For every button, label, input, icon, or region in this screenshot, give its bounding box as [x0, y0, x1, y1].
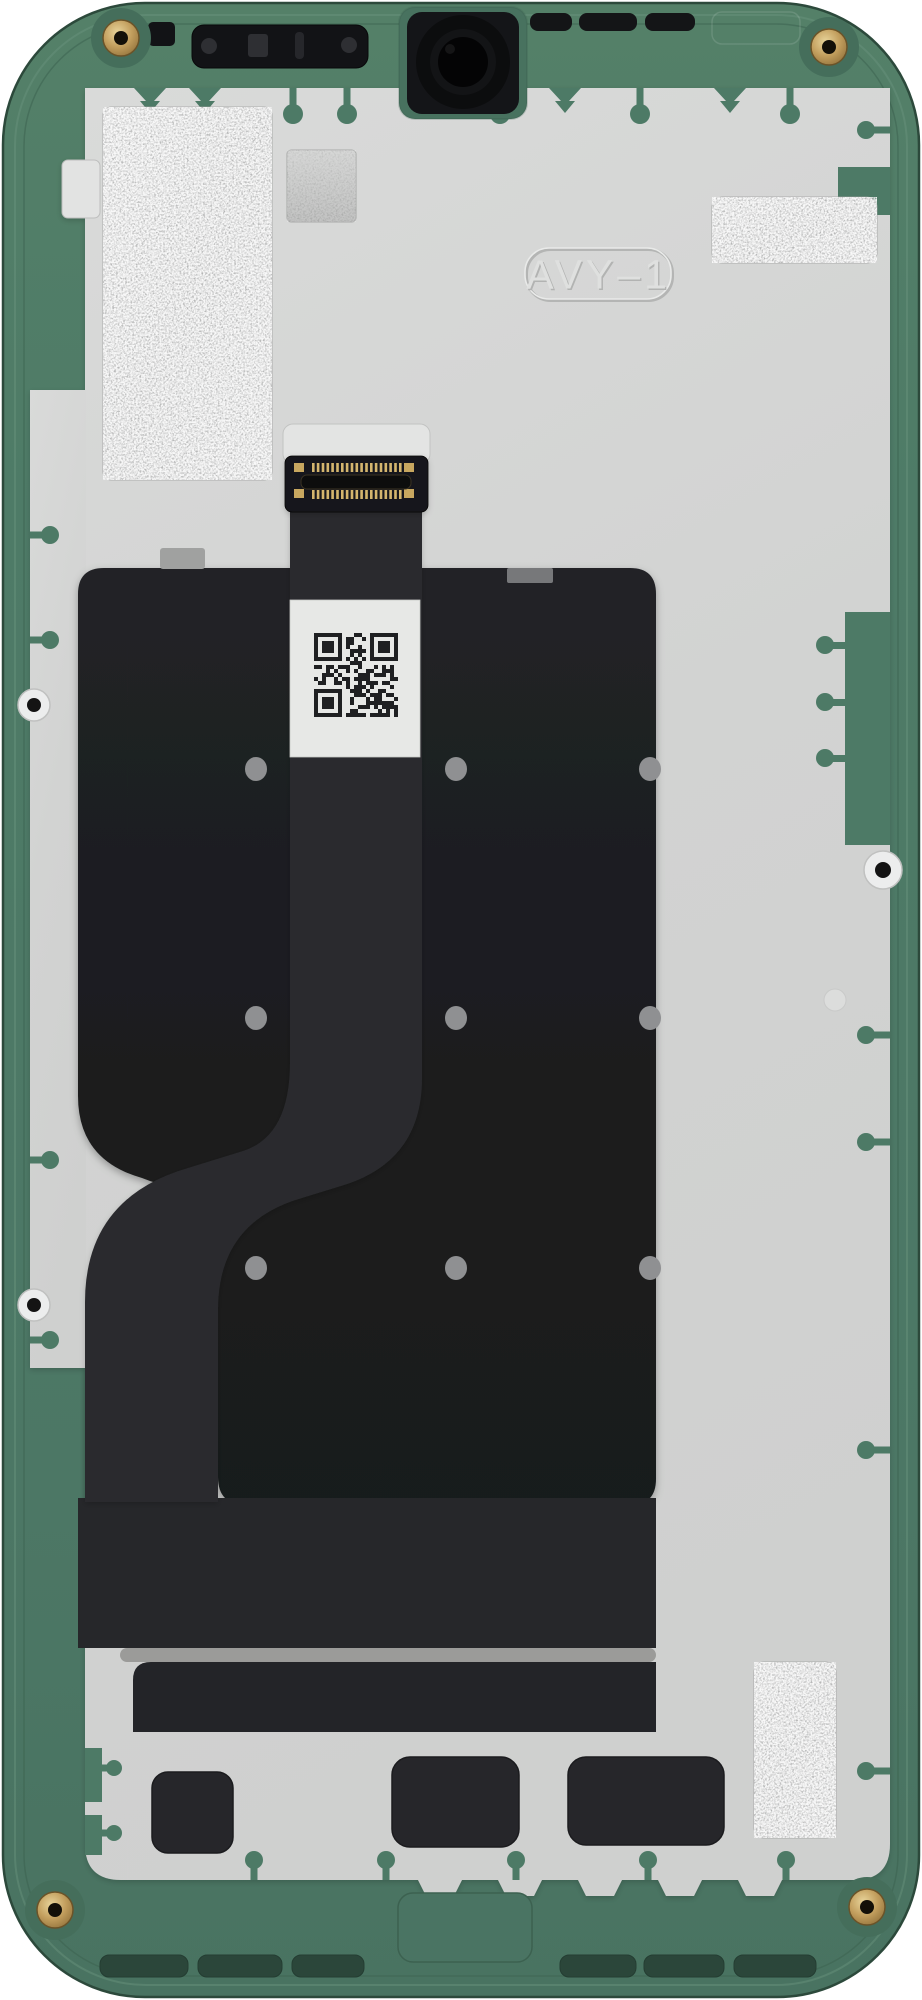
earpiece-port-2 — [341, 37, 357, 53]
screw-hole — [27, 1298, 41, 1312]
thermal-foil-bottom-right — [754, 1662, 836, 1838]
phone-assembly-photo: AVY–1 AVY–1 — [0, 0, 922, 2000]
connector-pad — [294, 489, 304, 498]
metal-band — [120, 1648, 656, 1662]
plate-step-right — [507, 568, 553, 583]
screw-top-left — [91, 8, 151, 68]
board-to-display-connector — [285, 456, 428, 512]
connector-pad — [294, 463, 304, 472]
emboss-text: AVY–1 — [526, 252, 671, 298]
mic-slot — [295, 32, 304, 59]
cutout-left — [152, 1772, 233, 1853]
metal-shield-square — [287, 150, 356, 222]
lower-graphite-stack — [78, 1498, 656, 1732]
cutout-center — [392, 1757, 519, 1847]
plate-step-left — [160, 548, 205, 569]
screw-bottom-left — [25, 1880, 85, 1940]
cutout-right — [568, 1757, 724, 1845]
plate-side-tab — [62, 160, 100, 218]
proximity-window — [148, 22, 175, 46]
thermal-foil-top-left — [103, 107, 272, 480]
earpiece-speaker — [192, 25, 368, 68]
connector-pad — [404, 463, 414, 472]
inner-dark-panel — [133, 1662, 656, 1732]
emboss-dimple — [824, 989, 846, 1011]
front-camera-lens — [438, 37, 488, 87]
connector-pad — [404, 489, 414, 498]
connector-slot — [301, 475, 411, 489]
front-camera — [399, 7, 527, 119]
top-antenna-slots — [530, 13, 695, 31]
serial-qr-label — [290, 600, 420, 757]
emboss-avy-label: AVY–1 AVY–1 — [525, 248, 673, 301]
thermal-foil-top-right — [712, 197, 877, 263]
screw-hole — [875, 862, 891, 878]
photo-phone-midframe: AVY–1 AVY–1 — [0, 0, 922, 2000]
screw-bottom-right — [837, 1877, 897, 1937]
screw-top-right — [799, 17, 859, 77]
lens-glint — [445, 44, 455, 54]
usb-port-recess — [398, 1893, 532, 1962]
sensor-window — [248, 34, 268, 57]
screw-hole — [27, 698, 41, 712]
lower-sheet — [78, 1498, 656, 1648]
earpiece-port — [201, 38, 217, 54]
